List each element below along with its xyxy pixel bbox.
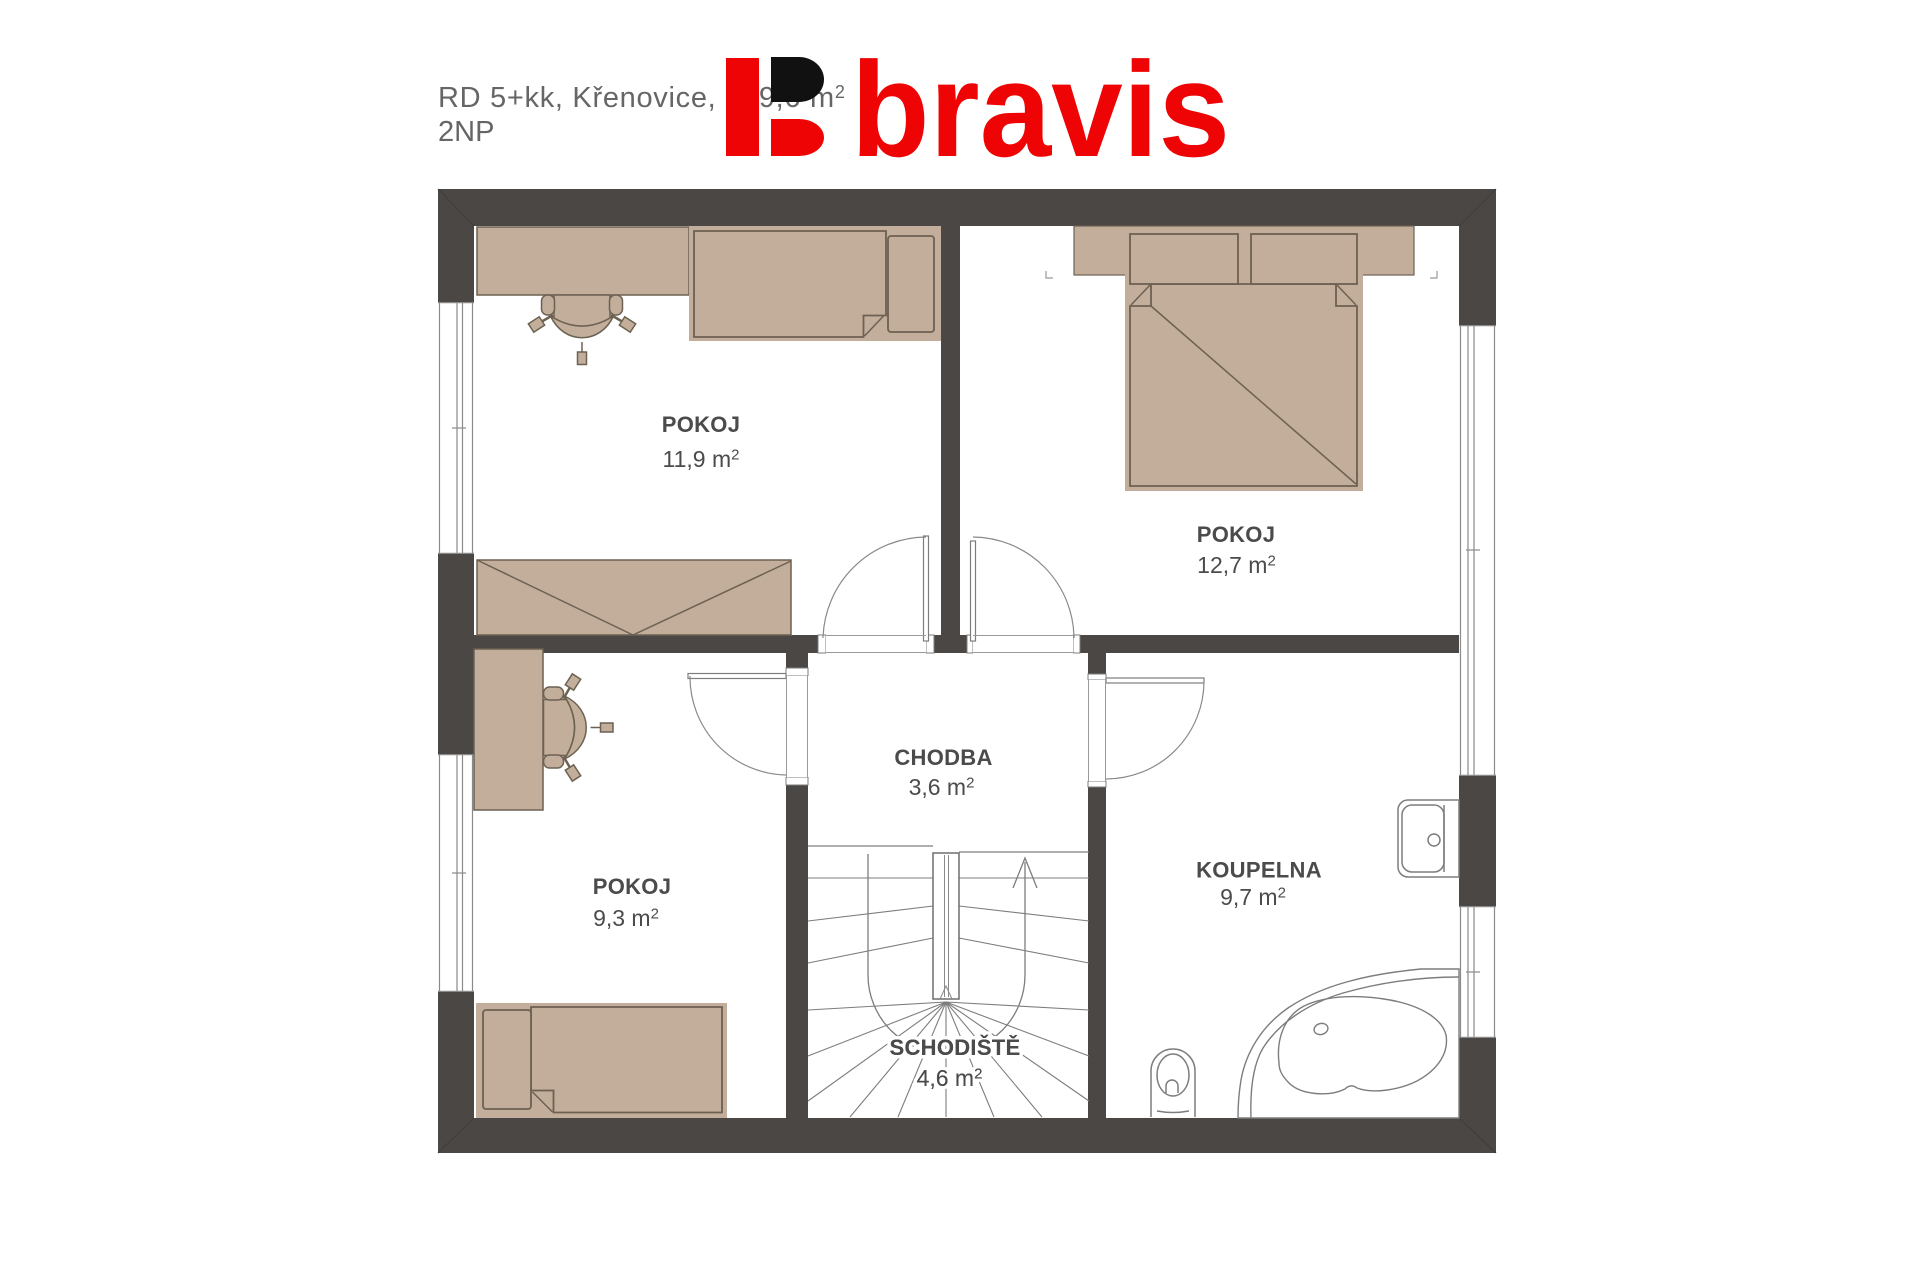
svg-text:POKOJ: POKOJ bbox=[593, 874, 672, 899]
svg-text:4,6 m2: 4,6 m2 bbox=[917, 1065, 983, 1091]
svg-text:CHODBA: CHODBA bbox=[894, 745, 992, 770]
svg-text:9,3 m2: 9,3 m2 bbox=[593, 905, 659, 931]
svg-text:11,9 m2: 11,9 m2 bbox=[663, 446, 740, 472]
svg-text:KOUPELNA: KOUPELNA bbox=[1196, 858, 1322, 883]
svg-text:SCHODIŠTĚ: SCHODIŠTĚ bbox=[889, 1035, 1020, 1060]
svg-text:12,7 m2: 12,7 m2 bbox=[1197, 552, 1276, 578]
svg-text:POKOJ: POKOJ bbox=[662, 412, 741, 437]
svg-text:3,6 m2: 3,6 m2 bbox=[909, 774, 975, 800]
svg-text:POKOJ: POKOJ bbox=[1197, 522, 1276, 547]
svg-text:9,7 m2: 9,7 m2 bbox=[1220, 884, 1286, 910]
svg-text:bravis: bravis bbox=[851, 34, 1230, 185]
svg-text:2NP: 2NP bbox=[438, 116, 494, 148]
